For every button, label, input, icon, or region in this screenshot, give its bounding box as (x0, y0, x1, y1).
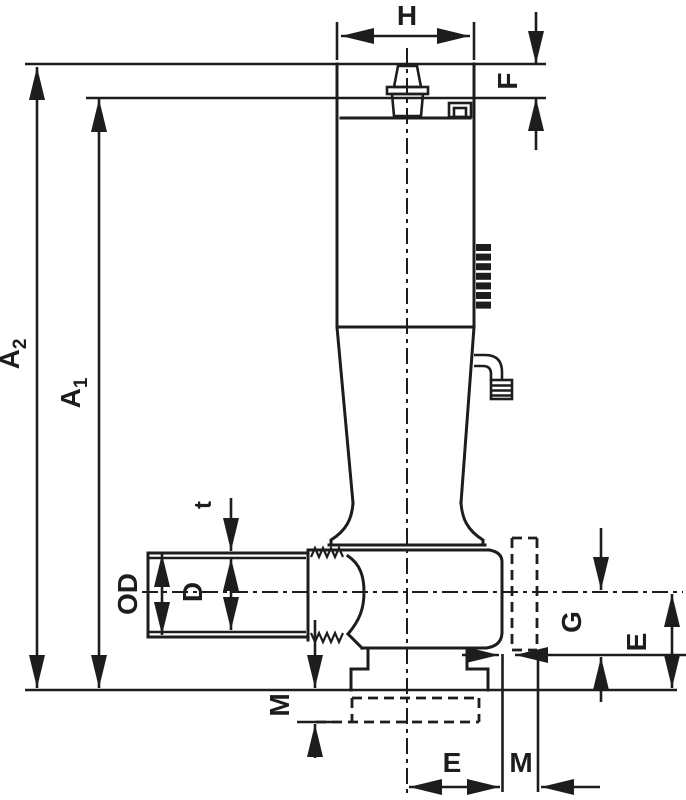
dim-label-a1-base: A (55, 388, 86, 408)
dim-label-t: t (190, 501, 217, 509)
valve-dimension-drawing: H F A2 A1 t D OD M (0, 0, 686, 800)
dim-label-a1-sub: 1 (71, 377, 92, 388)
dim-label-a2-sub: 2 (10, 339, 31, 350)
valve-body-outline (308, 550, 502, 690)
dim-label-m-bottom: M (509, 747, 532, 778)
bottom-port-hidden-cap (316, 698, 479, 722)
dim-label-a2: A2 (0, 339, 31, 370)
dim-G: G (556, 528, 601, 702)
dim-label-e-right: E (621, 633, 652, 652)
dim-A2: A2 (0, 67, 37, 688)
dim-label-e-bottom: E (443, 747, 462, 778)
dim-D: D (177, 558, 231, 630)
dim-label-g: G (556, 611, 587, 633)
dim-t: t (190, 498, 231, 551)
knurl-strip (476, 244, 491, 309)
dim-E-bottom: E (409, 747, 500, 787)
dim-label-a1: A1 (55, 377, 92, 408)
dim-OD: OD (112, 554, 162, 635)
dim-A1: A1 (55, 99, 99, 688)
dim-label-f: F (492, 72, 523, 89)
clip-block-detail (449, 103, 471, 117)
dim-label-d: D (177, 582, 208, 602)
drawing-canvas: H F A2 A1 t D OD M (0, 0, 686, 800)
dim-label-a2-base: A (0, 349, 25, 369)
dim-label-h: H (397, 0, 417, 31)
dim-H: H (341, 0, 470, 36)
dim-label-m-left: M (264, 693, 295, 716)
right-port-hidden-cap (512, 538, 537, 650)
dim-F: F (492, 12, 536, 150)
dim-M-bottom: M (509, 747, 600, 787)
hook-lever-detail (474, 355, 512, 399)
dim-label-od: OD (112, 573, 143, 615)
dim-E-right: E (621, 594, 672, 688)
